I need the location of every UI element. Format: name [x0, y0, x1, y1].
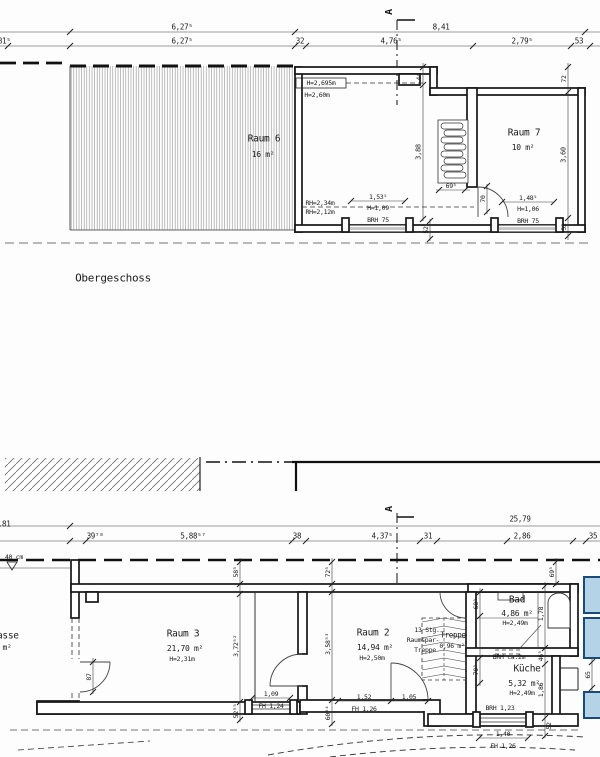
lower-floor-plan	[0, 513, 600, 757]
dim-label: 3,58⁵³	[325, 633, 332, 655]
dim-label: 1,05	[402, 694, 416, 701]
door-terrasse	[72, 618, 110, 702]
dim-label: H=1,09	[367, 205, 389, 212]
lower-walls	[37, 560, 578, 726]
section-line-a-bottom	[397, 513, 414, 583]
dim-label: 5,88⁵⁷	[180, 532, 205, 540]
dim-label: 1,81	[0, 520, 10, 528]
dim-label: 31	[424, 532, 432, 540]
floorplan-canvas: 6,27⁵8,411,81⁵6,27⁵324,76⁵2,79⁵53AH=2,69…	[0, 0, 600, 757]
section-marker-a-top: A	[385, 9, 395, 15]
dim-label: 1,53⁵	[369, 194, 387, 201]
level-marker	[0, 562, 70, 570]
stair-note: Raumspar-	[407, 637, 440, 644]
room-area-terrasse: m²	[2, 644, 11, 652]
door-raum2-north	[440, 586, 466, 619]
dim-label: 6,27⁵	[171, 37, 192, 45]
dim-label: 72⁵	[325, 567, 332, 578]
room-area-bad: 4,86 m²	[501, 610, 533, 618]
dim-label: 8,41	[433, 23, 450, 31]
dim-label: RH=2,12m	[306, 209, 335, 216]
dim-label: 52	[561, 223, 568, 230]
dim-label: 44	[416, 73, 423, 80]
dim-label: 35	[589, 532, 597, 540]
roof-hatch	[0, 63, 295, 230]
dim-label: 53	[575, 37, 583, 45]
room-name-bad: Bad	[509, 595, 525, 605]
sill-note: BRH 1,23	[486, 705, 515, 712]
dim-label: FH 1,24	[258, 703, 283, 710]
dim-label: 2,86	[514, 532, 531, 540]
stair-label: Treppe	[440, 631, 465, 639]
dim-label: 58⁵	[233, 567, 240, 578]
dim-label: H=2,50m	[359, 655, 384, 662]
dim-label: 6,27⁵	[171, 23, 192, 31]
dim-label: 69⁵	[549, 567, 556, 578]
dim-label: 1,81⁵	[0, 37, 11, 45]
room-name-terrasse: Terrasse	[0, 631, 19, 641]
dim-label: 69⁵	[446, 183, 457, 190]
dim-label: 32	[296, 37, 304, 45]
dim-label: 1,52	[357, 694, 371, 701]
dim-label: 3,88	[416, 144, 423, 160]
dim-label: RH=2,34m	[306, 200, 335, 207]
dim-label: 60⁶⁴	[325, 706, 332, 720]
dim-label: 1,40	[496, 731, 510, 738]
site-hatch	[5, 458, 200, 491]
dim-label: H=2,49m	[502, 620, 527, 627]
dim-label: FH 1,26	[351, 706, 376, 713]
dim-label: 1,48⁵	[519, 195, 537, 202]
dim-label: 65	[585, 671, 592, 678]
dim-label: 70⁵	[473, 665, 480, 676]
room-name-kueche: Küche	[513, 664, 540, 674]
level-note: 40 cm	[5, 554, 23, 561]
dim-label: 39⁷⁸	[87, 532, 104, 540]
dim-label: 4,37⁵	[371, 532, 392, 540]
room-name-raum7: Raum 7	[508, 128, 541, 138]
dim-label: 52	[546, 722, 553, 729]
dim-label: 72	[561, 75, 568, 82]
dim-label: H=2,49m	[509, 690, 534, 697]
dim-label: 3,60	[561, 147, 568, 163]
dim-label: 87	[86, 673, 93, 680]
neighbor-building-block	[584, 577, 600, 718]
dim-label: 3,72⁵²	[233, 635, 240, 657]
section-line-a-top	[397, 20, 415, 105]
right-niche	[560, 668, 578, 690]
dim-label: BRH 75	[367, 217, 389, 224]
dim-label: H=2,31m	[169, 656, 194, 663]
dim-label: 25,79	[509, 515, 530, 523]
room-area-raum7: 10 m²	[512, 144, 535, 152]
dim-label: 2,79⁵	[511, 37, 532, 45]
dim-label: FH 1,26	[490, 743, 515, 750]
dim-label: 1,78	[538, 607, 545, 621]
bathtub	[548, 593, 570, 628]
height-note: H=2,695m	[307, 80, 336, 87]
dim-label: 52⁵⁵	[233, 704, 240, 718]
dim-label: 70	[480, 195, 487, 202]
dim-label: BRH 75	[517, 218, 539, 225]
room-name-raum3: Raum 3	[167, 629, 200, 639]
room-area-raum6: 16 m²	[252, 151, 275, 159]
dim-label: 1,86	[538, 683, 545, 697]
section-marker-a-bottom: A	[385, 506, 395, 512]
staircase-upper	[438, 120, 468, 183]
room-area-raum2: 14,94 m²	[357, 644, 393, 652]
sill-note: BRH ca.2m	[493, 654, 526, 661]
dim-label: 4,76⁵	[380, 37, 401, 45]
door-raum3	[270, 654, 302, 686]
middle-separator	[5, 457, 600, 491]
dim-label: 46⁵	[538, 651, 545, 662]
dim-label: 68⁵	[473, 599, 480, 610]
stair-area: 0,96 m²	[439, 643, 464, 650]
dim-label: 1,09	[264, 691, 278, 698]
room-name-raum2: Raum 2	[357, 628, 390, 638]
dim-label: 52	[423, 226, 430, 233]
stair-note: Treppe	[414, 647, 436, 654]
room-area-raum3: 21,70 m²	[167, 645, 203, 653]
dim-label: 38	[293, 532, 301, 540]
floor-title: Obergeschoss	[75, 273, 151, 284]
room-area-kueche: 5,32 m²	[508, 680, 540, 688]
stair-note: 13 Stg.	[414, 627, 439, 634]
dim-label: H=1,06	[517, 206, 539, 213]
floorplan-svg	[0, 0, 600, 757]
height-note: H=2,60m	[304, 92, 329, 99]
room-name-raum6: Raum 6	[248, 134, 281, 144]
